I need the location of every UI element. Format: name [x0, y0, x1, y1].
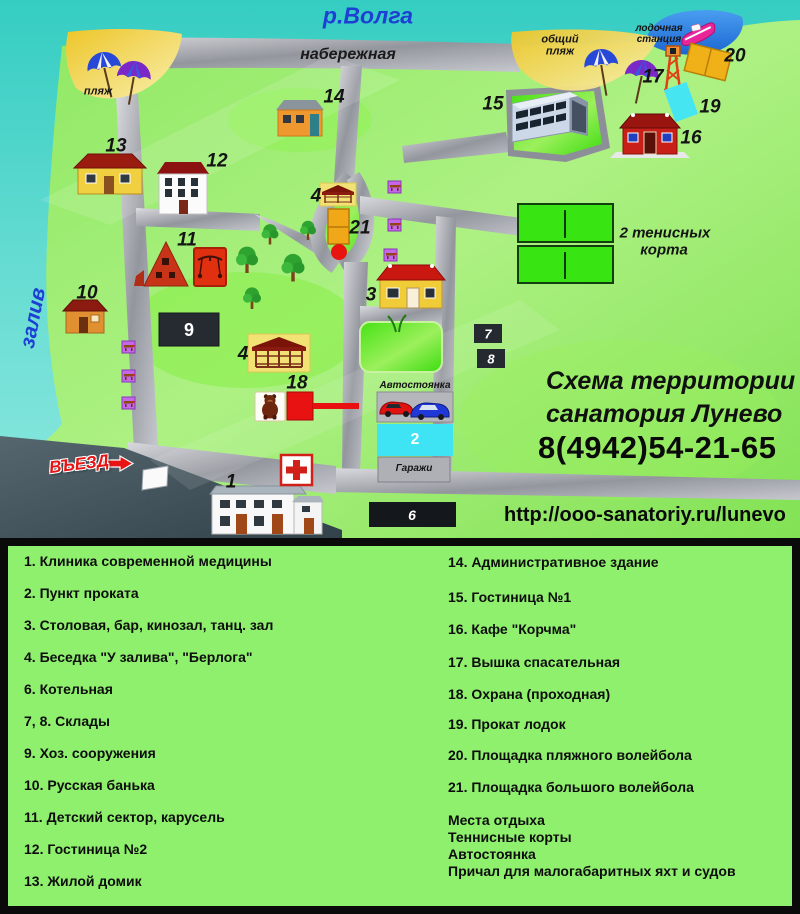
- label-13: 13: [105, 137, 126, 156]
- legend-item-16: 16. Кафе "Корчма": [448, 622, 576, 636]
- barrier-line: [313, 403, 359, 409]
- label-2: 2: [411, 432, 420, 448]
- label-14: 14: [323, 88, 344, 107]
- dining-house-icon: [377, 264, 445, 308]
- legend-item-18: 18. Охрана (проходная): [448, 687, 610, 701]
- legend-item-2: 2. Пункт проката: [24, 586, 139, 600]
- label-7: 7: [484, 328, 491, 341]
- label-9: 9: [184, 321, 194, 339]
- parking-label: Автостоянка: [379, 381, 450, 391]
- map-title-line1: Схема территории: [546, 369, 795, 394]
- label-10: 10: [76, 284, 97, 303]
- house-13-icon: [74, 154, 146, 194]
- legend-item-1: 1. Клиника современной медицины: [24, 554, 272, 568]
- legend-item-11: 11. Детский сектор, карусель: [24, 810, 225, 824]
- boat-station-label-1: лодочная: [635, 24, 682, 34]
- label-12: 12: [206, 152, 227, 171]
- legend-item-12: 12. Гостиница №2: [24, 842, 147, 856]
- site-url: http://ooo-sanatoriy.ru/lunevo: [504, 505, 786, 525]
- legend-item-6: 6. Котельная: [24, 682, 113, 696]
- legend-item-15: 15. Гостиница №1: [448, 590, 571, 604]
- rest-lawn: [360, 315, 442, 372]
- admin-building-icon: [276, 100, 324, 136]
- label-3: 3: [366, 286, 377, 305]
- legend-extra-pier: Причал для малогабаритных яхт и судов: [448, 864, 736, 878]
- map-title-line2: санатория Лунево: [546, 402, 782, 427]
- guard-post-box: [287, 392, 313, 420]
- legend-item-3: 3. Столовая, бар, кинозал, танц. зал: [24, 618, 273, 632]
- gazebo-small-icon: [320, 183, 356, 206]
- legend-panel: 1. Клиника современной медицины 2. Пункт…: [8, 546, 792, 906]
- label-4b: 4: [311, 187, 322, 206]
- legend-item-9: 9. Хоз. сооружения: [24, 746, 156, 760]
- legend-item-7-8: 7, 8. Склады: [24, 714, 110, 728]
- public-beach-label-1: общий: [541, 35, 578, 46]
- label-21: 21: [349, 219, 370, 238]
- legend-extra-tennis: Теннисные корты: [448, 830, 572, 844]
- legend-item-21: 21. Площадка большого волейбола: [448, 780, 694, 794]
- garages-label: Гаражи: [396, 464, 433, 474]
- label-17: 17: [642, 68, 663, 87]
- bear-sign-icon: [255, 392, 285, 421]
- label-1: 1: [226, 473, 237, 492]
- phone-number: 8(4942)54-21-65: [538, 432, 776, 463]
- tennis-label-2: корта: [640, 243, 688, 258]
- beach-label: пляж: [84, 87, 112, 98]
- legend-item-19: 19. Прокат лодок: [448, 717, 566, 731]
- legend-item-10: 10. Русская банька: [24, 778, 155, 792]
- river-label: р.Волга: [323, 5, 413, 28]
- tennis-label-1: 2 тенисных: [620, 226, 711, 241]
- carousel-icon: [194, 248, 226, 286]
- medical-cross-icon: [281, 455, 312, 485]
- legend-item-20: 20. Площадка пляжного волейбола: [448, 748, 692, 762]
- label-15: 15: [482, 95, 503, 114]
- gazebo-icon: [248, 334, 310, 372]
- map-area: р.Волга набережная залив пляж общий пляж…: [0, 0, 800, 538]
- label-11: 11: [177, 231, 197, 250]
- label-4a: 4: [238, 345, 249, 364]
- public-beach-label-2: пляж: [546, 47, 574, 58]
- label-18: 18: [286, 374, 307, 393]
- label-6: 6: [408, 508, 416, 522]
- banya-icon: [63, 300, 107, 333]
- blue-car-icon: [411, 403, 449, 420]
- hotel2-icon: [157, 162, 209, 214]
- embankment-label: набережная: [300, 47, 396, 63]
- legend-extra-parking: Автостоянка: [448, 847, 536, 861]
- legend-item-4: 4. Беседка "У залива", "Берлога": [24, 650, 253, 664]
- volleyball-court-21: [328, 209, 349, 260]
- legend-extra-rest-spots: Места отдыха: [448, 813, 545, 827]
- legend-item-14: 14. Административное здание: [448, 555, 659, 569]
- scheme-page: р.Волга набережная залив пляж общий пляж…: [0, 0, 800, 914]
- boat-station-label-2: станция: [637, 35, 682, 45]
- legend-item-13: 13. Жилой домик: [24, 874, 142, 888]
- label-8: 8: [487, 353, 494, 366]
- label-20: 20: [724, 47, 745, 66]
- label-19: 19: [699, 98, 720, 117]
- legend-item-17: 17. Вышка спасательная: [448, 655, 620, 669]
- label-16: 16: [680, 129, 701, 148]
